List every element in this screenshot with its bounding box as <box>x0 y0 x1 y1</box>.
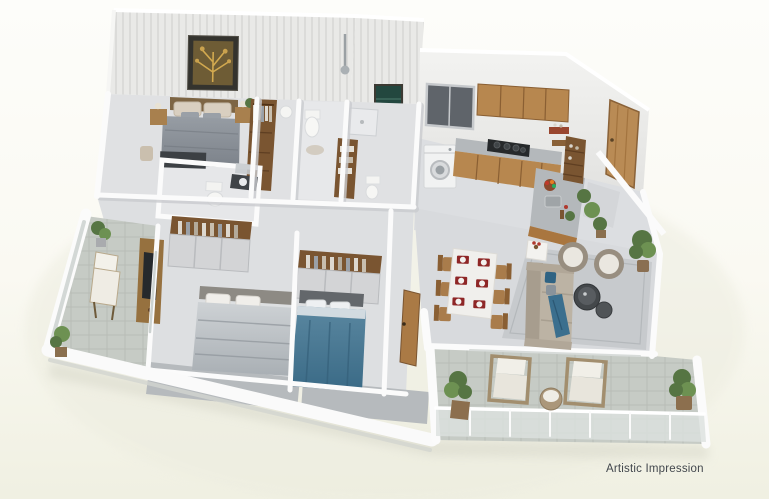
side-table <box>526 240 548 261</box>
shower-head-icon <box>341 66 350 75</box>
balcony-table <box>540 388 562 410</box>
kitchen-window <box>426 84 474 129</box>
sofa <box>524 262 575 350</box>
wardrobe-doors <box>168 234 250 272</box>
sink <box>545 196 561 207</box>
jar <box>559 124 562 127</box>
garment <box>234 225 238 238</box>
bed-silver <box>192 286 296 376</box>
shelf-red <box>549 127 569 134</box>
washer-drum <box>436 166 445 175</box>
bottle <box>560 210 564 219</box>
garment <box>362 259 366 272</box>
burner <box>504 144 510 150</box>
shelf-unit <box>563 136 586 184</box>
vase <box>534 245 538 249</box>
chair-seat <box>490 315 502 329</box>
upper-cabinets <box>477 84 569 122</box>
accent-chair <box>140 146 153 161</box>
toilet-tank <box>206 182 222 192</box>
garment <box>226 224 230 237</box>
wardrobe-3 <box>168 216 252 272</box>
plant-foliage <box>444 382 460 398</box>
drain-icon <box>360 120 364 124</box>
plant-icon <box>50 336 62 348</box>
plant-icon <box>584 202 600 218</box>
plant-pot <box>450 400 470 420</box>
plant-foliage <box>629 245 643 259</box>
garment <box>202 223 206 236</box>
chair-back <box>437 255 443 271</box>
flower <box>532 241 536 245</box>
garment <box>265 106 268 121</box>
nightstand <box>235 107 252 123</box>
wall-art <box>188 36 239 91</box>
toilet-bowl <box>366 185 378 199</box>
fruit <box>545 181 549 185</box>
garment <box>346 258 350 271</box>
garment <box>354 258 358 271</box>
plant-foliage <box>669 383 683 397</box>
plant-icon <box>593 217 607 231</box>
blue-pillow <box>545 272 557 284</box>
door-leaf <box>606 100 639 188</box>
bedroom-2-door-open <box>400 290 420 366</box>
table-top <box>543 390 559 402</box>
door-leaf <box>400 290 420 366</box>
chair-back <box>434 305 440 321</box>
plant-pot <box>676 396 692 410</box>
flower <box>564 205 568 209</box>
lamp-icon <box>155 103 161 109</box>
garment <box>269 106 272 122</box>
garment <box>218 224 222 237</box>
door-handle-icon <box>402 322 406 326</box>
chair-back <box>436 280 442 296</box>
plant-pot <box>637 260 649 272</box>
open-shelves <box>563 136 586 184</box>
entrance-door <box>606 100 639 188</box>
chair-back <box>506 263 512 279</box>
garment <box>322 256 326 269</box>
seat-cushion <box>569 376 603 403</box>
plant-pot <box>596 230 606 238</box>
toilet-bowl <box>305 117 319 137</box>
plant-foliage <box>458 385 472 399</box>
balcony-wall-left <box>430 348 436 440</box>
jar <box>569 144 573 148</box>
garment <box>194 222 198 235</box>
garment <box>306 255 310 268</box>
garment <box>178 221 182 234</box>
wall-living-west <box>424 312 428 348</box>
jar <box>575 146 579 150</box>
flower <box>537 242 541 246</box>
seat-cushion <box>493 373 527 400</box>
caption: Artistic Impression <box>606 463 704 475</box>
floor-plan-render: Artistic Impression <box>0 0 769 499</box>
garment <box>186 222 190 235</box>
washbasin <box>239 178 247 186</box>
gray-pillow <box>546 285 556 295</box>
armchair-cushion <box>599 254 619 274</box>
burner <box>494 142 500 148</box>
garment <box>314 256 318 269</box>
door-handle-icon <box>610 138 614 142</box>
burner <box>513 145 519 151</box>
fruit <box>550 180 554 184</box>
back-cushion <box>572 361 602 378</box>
plant-icon <box>565 211 575 221</box>
plant-pot <box>96 238 106 247</box>
jar <box>553 123 556 126</box>
chair-back <box>504 288 510 304</box>
nightstand <box>150 109 167 125</box>
plant-icon <box>577 189 591 203</box>
round-rug <box>306 145 324 155</box>
washing-machine <box>424 145 456 188</box>
plant-pot <box>55 347 67 357</box>
washer-knob <box>449 148 452 151</box>
washbasin <box>280 106 292 118</box>
chair-back <box>502 313 508 329</box>
coffee-table-small <box>596 302 612 318</box>
chair-seat-cushion <box>90 268 120 306</box>
garment <box>338 257 342 270</box>
armchair-cushion <box>563 247 583 267</box>
garment <box>210 223 214 236</box>
master-bed <box>160 97 240 169</box>
window-mullion <box>449 86 450 128</box>
chair-seat <box>492 290 504 304</box>
back-cushion <box>496 358 526 375</box>
table-top <box>526 240 548 261</box>
balcony-glass-railing <box>436 408 706 442</box>
decor <box>583 292 587 296</box>
toilet-tank <box>366 176 380 184</box>
floor-plan-svg <box>0 0 769 499</box>
burner <box>521 148 526 153</box>
garment <box>330 257 334 270</box>
fruit <box>552 184 556 188</box>
jar <box>568 156 572 160</box>
dining-table <box>447 248 497 319</box>
table-top <box>578 287 596 305</box>
